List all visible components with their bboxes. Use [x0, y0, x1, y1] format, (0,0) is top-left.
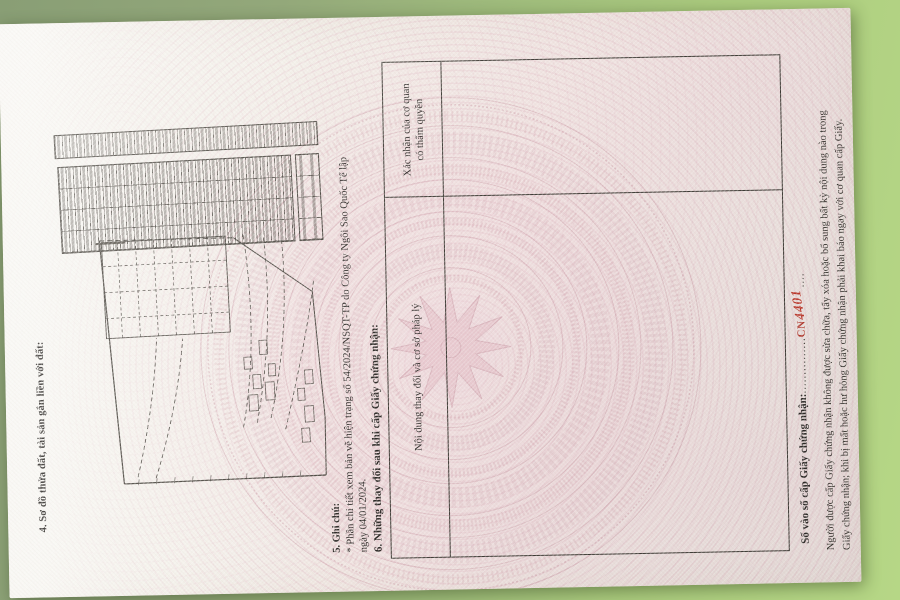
coordinate-table — [57, 154, 295, 254]
changes-table: Nội dung thay đổi và cơ sở pháp lý Xác n… — [381, 54, 789, 559]
certificate-page: 4. Sơ đồ thửa đất, tài sản gắn liền với … — [2, 11, 859, 593]
changes-table-left-header: Nội dung thay đổi và cơ sở pháp lý — [385, 197, 451, 558]
trailing-dots: .... — [794, 272, 806, 287]
changes-table-right-header: Xác nhận của cơ quan có thẩm quyền — [382, 63, 444, 197]
coordinate-table-tail — [295, 153, 324, 241]
cn-number-handwritten: 4401 — [788, 288, 809, 319]
photo-background: { "certificate": { "section4_title": "4.… — [0, 0, 900, 600]
certificate-paper: 4. Sơ đồ thửa đất, tài sản gắn liền với … — [0, 8, 861, 598]
page-content: 4. Sơ đồ thửa đất, tài sản gắn liền với … — [2, 11, 859, 593]
changes-table-column-divider — [385, 189, 782, 198]
cn-prefix: CN — [795, 320, 807, 337]
register-label: Số vào sổ cấp Giấy chứng nhận: — [797, 393, 812, 543]
coordinate-table-index — [53, 121, 318, 159]
leader-dots: ............... — [796, 337, 809, 393]
site-plan-drawing — [85, 225, 330, 489]
